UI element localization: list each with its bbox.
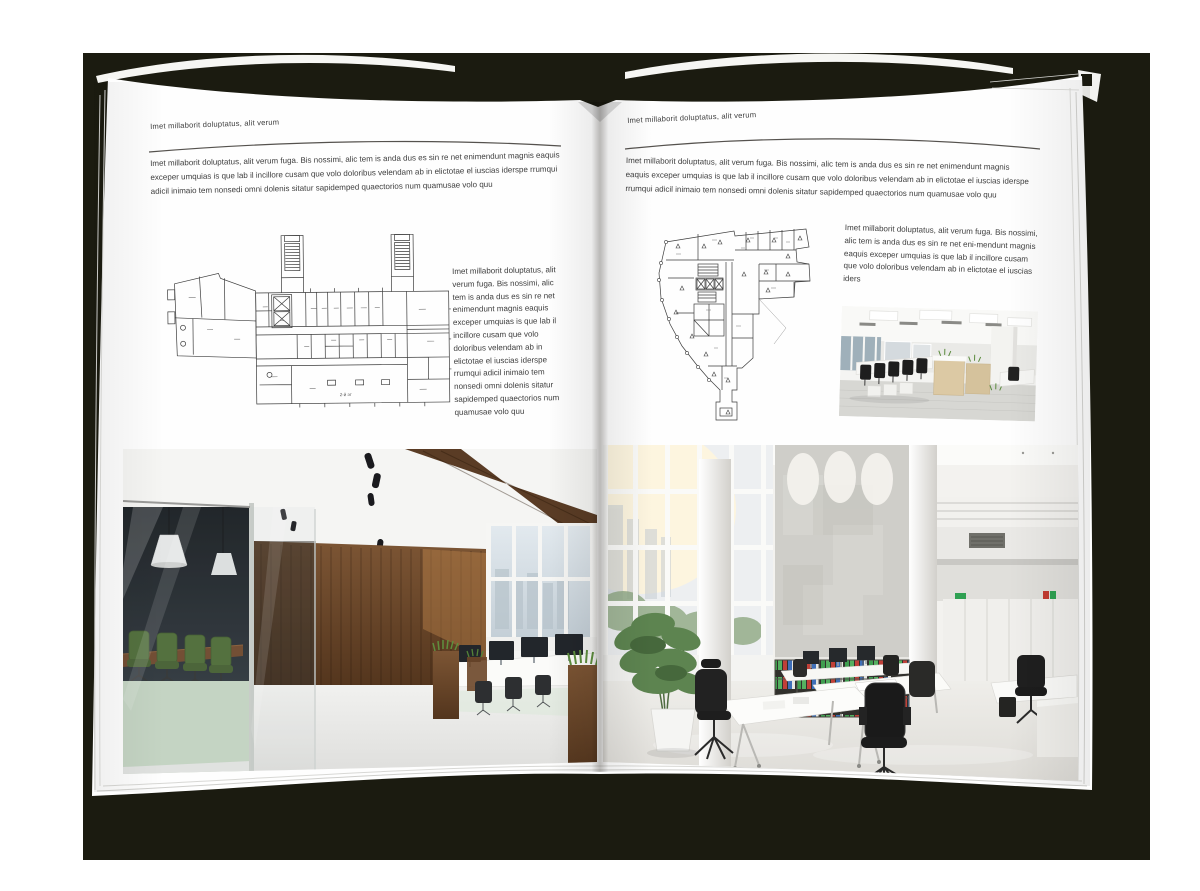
left-page-photo-loft-office (123, 449, 597, 775)
left-floor-plan: 2-й эт (158, 229, 452, 422)
magazine-mockup: Imet millaborit doluptatus, alit verum I… (0, 0, 1200, 891)
fanned-corner-notch (1081, 74, 1092, 86)
plan-symbols (674, 236, 802, 414)
wooden-cabinet (934, 359, 965, 396)
right-page-side-text: Imet millaborit doluptatus, alit verum f… (843, 222, 1039, 292)
back-page-edge-left (96, 55, 455, 83)
floor-plan-level-label: 2-й эт (340, 391, 352, 397)
left-page-side-text: Imet millaborit doluptatus, alit verum f… (452, 264, 569, 420)
right-page-photo-small-office (839, 306, 1038, 421)
safety-sign-icon (1050, 591, 1056, 599)
right-floor-plan (646, 218, 831, 425)
wall-spotlight-glows (787, 451, 893, 505)
black-chair-mid (909, 661, 935, 697)
left-page-intro: Imet millaborit doluptatus, alit verum f… (150, 148, 567, 198)
right-page-intro: Imet millaborit doluptatus, alit verum f… (625, 154, 1034, 202)
back-page-edge-right (625, 53, 1013, 79)
column-back (909, 445, 937, 697)
fire-sign-icon (1043, 591, 1049, 599)
black-mesh-chair-front (859, 683, 912, 790)
right-page-photo-bright-office (603, 445, 1078, 790)
exit-sign-icon (955, 593, 966, 599)
